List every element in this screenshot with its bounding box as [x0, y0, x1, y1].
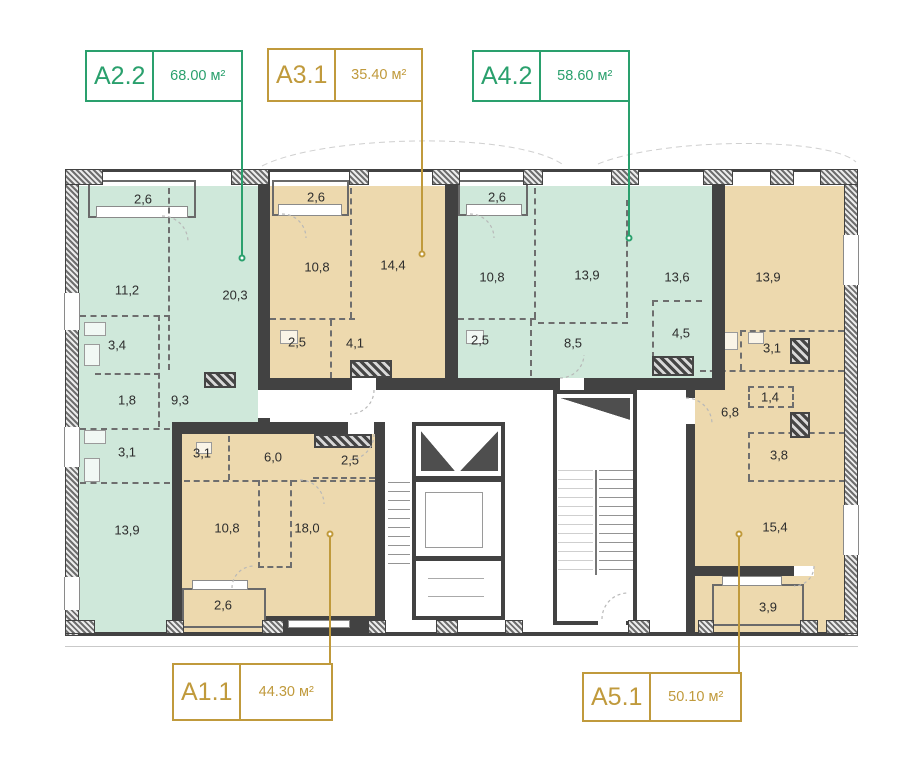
arcs-overlay [0, 0, 900, 768]
room-area-label: 1,8 [118, 393, 136, 408]
floor-plan: 2,6 11,2 20,3 3,4 1,8 9,3 3,1 13,9 2,6 1… [0, 0, 900, 768]
room-area-label: 3,9 [759, 600, 777, 615]
door-swing-arc [470, 214, 494, 238]
room-area-label: 4,5 [672, 326, 690, 341]
overhang-dashed-line [598, 143, 856, 164]
room-area-label: 4,1 [346, 336, 364, 351]
room-area-label: 20,3 [222, 288, 247, 303]
room-area-label: 13,9 [114, 523, 139, 538]
room-area-label: 2,5 [288, 335, 306, 350]
callout-leader [329, 536, 331, 663]
room-area-label: 3,8 [770, 448, 788, 463]
overhang-dashed-line [262, 141, 562, 166]
room-area-label: 6,8 [721, 405, 739, 420]
room-area-label: 15,4 [762, 520, 787, 535]
unit-id: A3.1 [269, 50, 336, 100]
callout-a22[interactable]: A2.2 68.00 м² [85, 50, 243, 102]
room-area-label: 13,6 [664, 270, 689, 285]
room-area-label: 18,0 [294, 521, 319, 536]
door-swing-arc [602, 593, 628, 619]
room-area-label: 10,8 [479, 270, 504, 285]
unit-id: A4.2 [474, 52, 541, 100]
door-swing-arc [350, 390, 374, 414]
callout-a42[interactable]: A4.2 58.60 м² [472, 50, 630, 102]
room-area-label: 2,6 [488, 190, 506, 205]
unit-id: A1.1 [174, 665, 241, 719]
door-swing-arc [686, 398, 712, 424]
room-area-label: 3,1 [193, 446, 211, 461]
room-area-label: 10,8 [214, 521, 239, 536]
room-area-label: 1,4 [761, 390, 779, 405]
callout-node [239, 255, 246, 262]
room-area-label: 13,9 [755, 270, 780, 285]
room-area-label: 2,5 [341, 453, 359, 468]
callout-node [626, 235, 633, 242]
callout-node [419, 251, 426, 258]
room-area-label: 14,4 [380, 258, 405, 273]
room-area-label: 3,4 [108, 338, 126, 353]
room-area-label: 2,5 [471, 333, 489, 348]
room-area-label: 8,5 [564, 336, 582, 351]
unit-id: A5.1 [584, 674, 651, 720]
room-area-label: 2,6 [134, 192, 152, 207]
callout-leader [421, 102, 423, 254]
room-area-label: 3,1 [763, 341, 781, 356]
door-swing-arc [300, 480, 324, 504]
callout-a51[interactable]: A5.1 50.10 м² [582, 672, 742, 722]
room-area-label: 6,0 [264, 450, 282, 465]
unit-area: 35.40 м² [336, 50, 421, 100]
unit-area: 68.00 м² [154, 52, 241, 100]
callout-node [327, 531, 334, 538]
room-area-label: 9,3 [171, 393, 189, 408]
unit-area: 58.60 м² [541, 52, 628, 100]
callout-leader [628, 102, 630, 238]
callout-a11[interactable]: A1.1 44.30 м² [172, 663, 333, 721]
door-swing-arc [560, 355, 584, 378]
room-area-label: 2,6 [214, 598, 232, 613]
room-area-label: 11,2 [115, 283, 139, 298]
door-swing-arc [282, 214, 306, 238]
unit-area: 50.10 м² [651, 674, 740, 720]
room-area-label: 2,6 [307, 190, 325, 205]
door-swing-arc [162, 216, 188, 242]
room-area-label: 3,1 [118, 445, 136, 460]
unit-area: 44.30 м² [241, 665, 331, 719]
callout-leader [738, 536, 740, 672]
door-swing-arc [794, 566, 814, 586]
unit-id: A2.2 [87, 52, 154, 100]
room-area-label: 10,8 [304, 260, 329, 275]
callout-node [736, 531, 743, 538]
room-area-label: 13,9 [574, 268, 599, 283]
door-swing-arc [232, 566, 254, 588]
callout-leader [241, 102, 243, 258]
callout-a31[interactable]: A3.1 35.40 м² [267, 48, 423, 102]
